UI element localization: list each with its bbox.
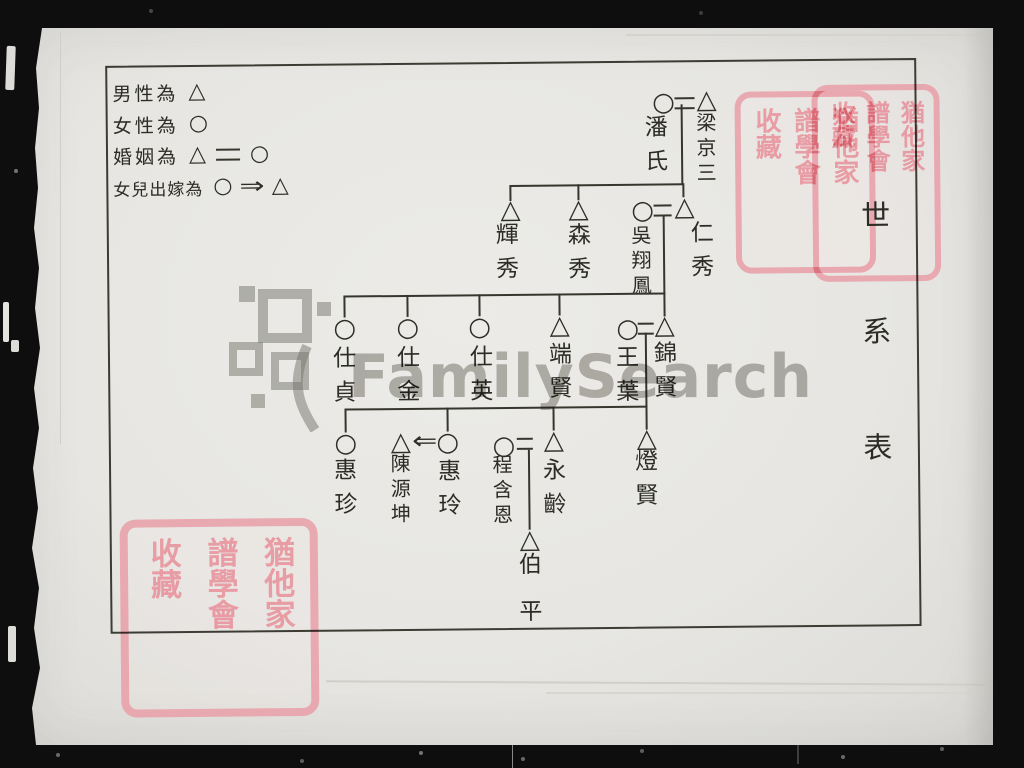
person-name: 程含恩 <box>491 454 512 529</box>
seal-text-column: 猶他家 <box>898 100 924 265</box>
female-symbol: ○ <box>396 315 419 341</box>
title-char: 表 <box>863 424 892 466</box>
male-symbol: △ <box>520 527 540 553</box>
male-symbol: △ <box>568 196 588 222</box>
film-scratch <box>11 340 19 352</box>
genealogy-chart: 男性為 △ 女性為 ○ 婚姻為 △ ○ 女兒出嫁為 ○ ⇒ △ <box>23 23 997 749</box>
marriage-double-line <box>675 97 695 109</box>
female-symbol: ○ <box>436 429 459 455</box>
person-name: 永齡 <box>539 457 563 525</box>
male-symbol: △ <box>655 312 675 338</box>
male-symbol: △ <box>674 194 694 220</box>
legend-row-marriage: 婚姻為 △ ○ <box>113 141 269 168</box>
person-name: 吳翔鳳 <box>630 225 651 300</box>
legend: 男性為 △ 女性為 ○ 婚姻為 △ ○ 女兒出嫁為 ○ ⇒ △ <box>23 23 990 32</box>
female-symbol: ○ <box>250 143 269 165</box>
person-name: 惠珍 <box>330 457 354 525</box>
legend-row-female: 女性為 ○ <box>113 111 208 138</box>
seal-text-column: 收藏 <box>147 537 180 699</box>
female-symbol: ○ <box>616 316 639 342</box>
marriage-double-line <box>216 149 240 161</box>
female-symbol: ○ <box>213 176 232 198</box>
male-symbol: △ <box>189 144 206 166</box>
male-symbol: △ <box>544 427 564 453</box>
film-scratch <box>5 46 16 90</box>
film-specks <box>0 0 2 2</box>
legend-label: 女兒出嫁為 <box>113 174 203 200</box>
female-symbol: ○ <box>468 314 491 340</box>
person-name: 仕英 <box>466 344 490 412</box>
person-name: 伯平 <box>515 552 539 646</box>
marriage-double-line <box>517 438 533 450</box>
female-symbol: ○ <box>189 113 208 135</box>
seal-text-column: 收藏 <box>753 107 780 257</box>
person-name: 王葉 <box>612 345 636 413</box>
female-symbol: ○ <box>652 89 675 115</box>
person-name: 燈賢 <box>631 449 655 517</box>
scan-background: 男性為 △ 女性為 ○ 婚姻為 △ ○ 女兒出嫁為 ○ ⇒ △ <box>0 0 1024 768</box>
person-name: 端賢 <box>545 341 569 409</box>
female-symbol: ○ <box>631 198 654 224</box>
double-arrow-right-icon: ⇒ <box>240 175 265 198</box>
person-name: 陳源坤 <box>389 453 410 528</box>
person-name: 仁秀 <box>687 220 711 288</box>
page-title: 世 系 表 <box>861 192 893 466</box>
person-name: 潘氏 <box>641 114 665 182</box>
person-name: 輝秀 <box>492 222 516 290</box>
double-arrow-left-icon: ⇐ <box>412 429 437 453</box>
seal-text-column: 猶他家 <box>260 536 293 698</box>
person-name: 惠玲 <box>434 458 458 526</box>
document-page: 男性為 △ 女性為 ○ 婚姻為 △ ○ 女兒出嫁為 ○ ⇒ △ <box>26 28 993 745</box>
legend-label: 男性為 <box>112 79 178 107</box>
female-symbol: ○ <box>333 315 356 341</box>
title-char: 系 <box>862 308 891 350</box>
male-symbol: △ <box>272 175 289 197</box>
male-symbol: △ <box>550 312 570 338</box>
film-scratch <box>3 302 9 342</box>
female-symbol: ○ <box>334 430 357 456</box>
archive-seal: 猶他家 譜學會 收藏 <box>120 518 320 718</box>
seal-text-column: 譜學會 <box>203 537 236 699</box>
male-symbol: △ <box>391 429 411 455</box>
male-symbol: △ <box>500 197 520 223</box>
seal-text-column: 收藏 <box>829 101 855 266</box>
person-name: 仕金 <box>393 345 417 413</box>
legend-row-male: 男性為 △ <box>112 79 205 106</box>
male-symbol: △ <box>696 87 716 113</box>
person-name: 錦賢 <box>650 340 674 408</box>
film-scratch <box>8 626 16 662</box>
person-name: 梁京三 <box>695 112 716 187</box>
person-name: 森秀 <box>564 222 588 290</box>
legend-label: 婚姻為 <box>113 142 179 170</box>
male-symbol: △ <box>188 81 205 103</box>
legend-label: 女性為 <box>113 111 179 139</box>
legend-row-daughter-out: 女兒出嫁為 ○ ⇒ △ <box>113 173 289 201</box>
title-char: 世 <box>861 192 890 234</box>
person-name: 仕貞 <box>329 345 353 413</box>
